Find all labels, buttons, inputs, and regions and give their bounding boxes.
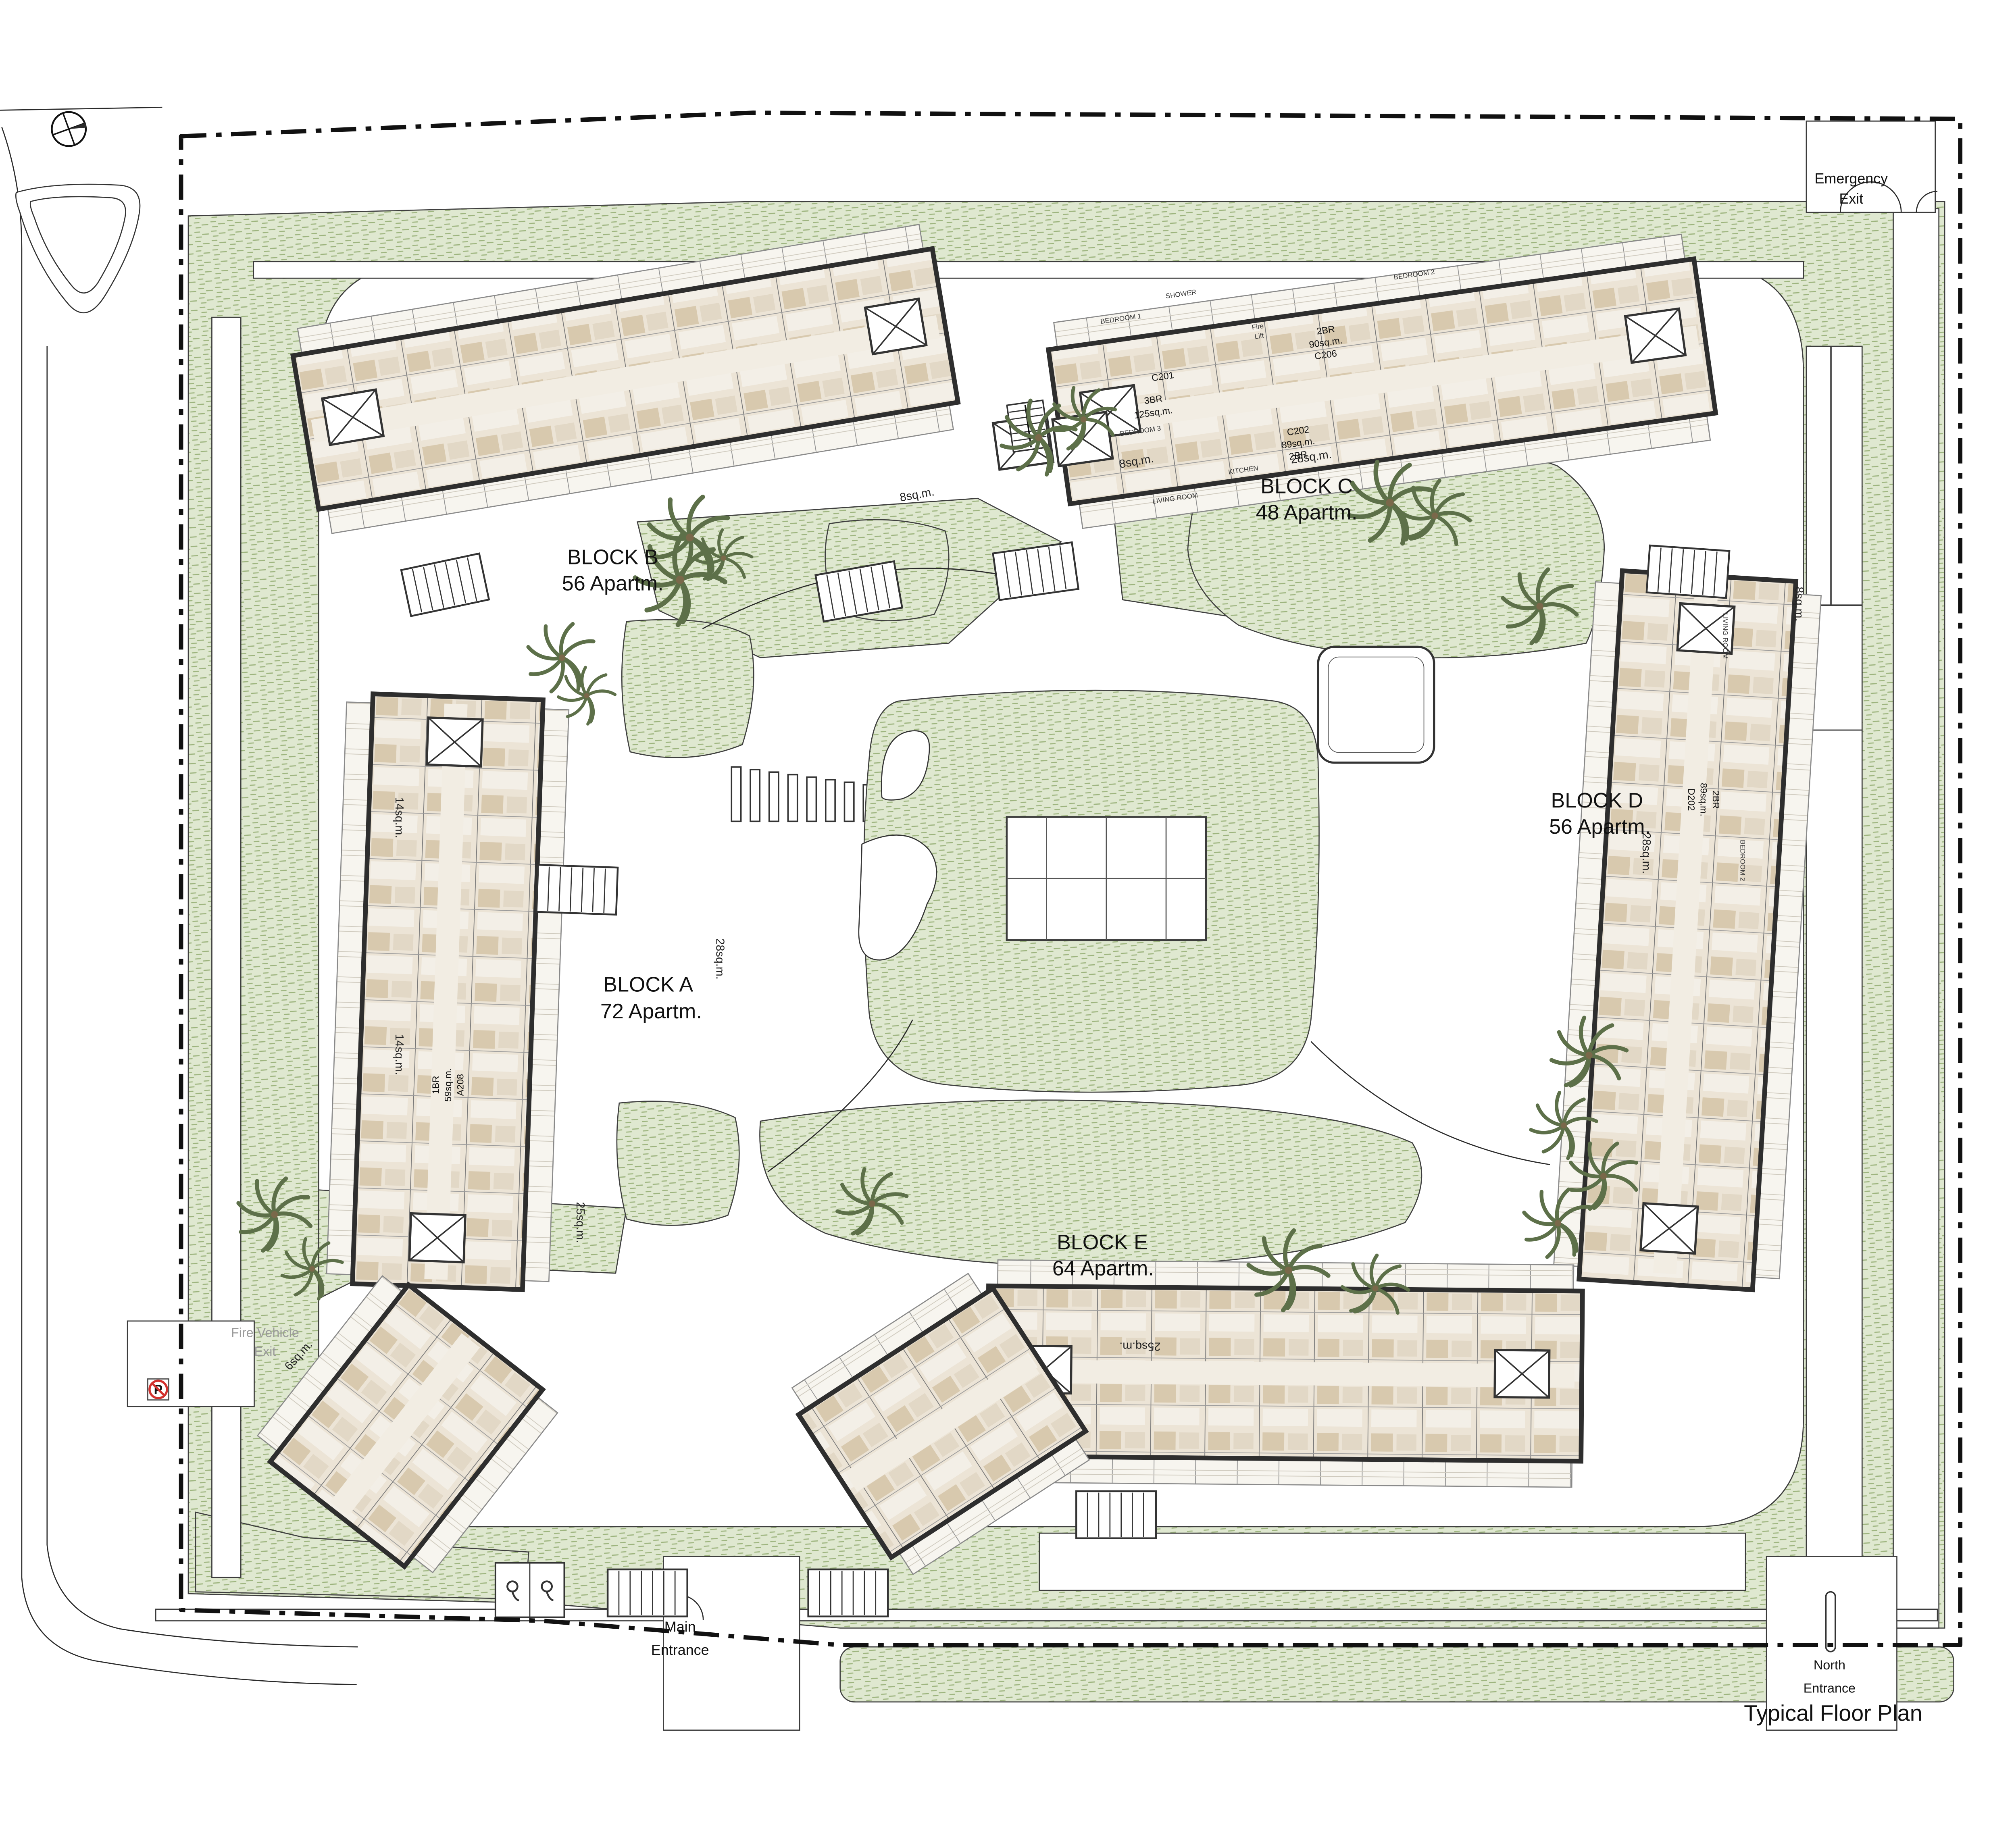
shaft-icon <box>1495 1350 1549 1398</box>
north-entrance-label-1: North <box>1814 1658 1845 1672</box>
accessible-parking-icon <box>496 1563 564 1617</box>
block-b-label: BLOCK B <box>567 546 658 569</box>
room-label-living-d: LIVING ROOM <box>1721 613 1729 659</box>
block-a-apartments: 72 Apartm. <box>600 1000 702 1023</box>
unit-label-d202: D202 <box>1686 789 1697 811</box>
room-label-bedroom2-d: BEDROOM 2 <box>1739 840 1747 881</box>
block-b-apartments: 56 Apartm. <box>562 572 664 595</box>
unit-label-a208-area: 59sq.m. <box>443 1068 453 1102</box>
pergola-icon <box>401 554 489 616</box>
block-c-label: BLOCK C <box>1260 475 1353 498</box>
main-entrance-label-2: Entrance <box>651 1642 709 1658</box>
shaft-icon <box>427 718 483 766</box>
drawing-title: Typical Floor Plan <box>1744 1700 1922 1725</box>
fire-vehicle-exit-label-1: Fire Vehicle <box>231 1325 299 1340</box>
block-e-label: BLOCK E <box>1057 1231 1148 1254</box>
fire-vehicle-exit-label-2: Exit <box>254 1344 276 1359</box>
pergola-icon <box>808 1569 888 1617</box>
block-d-apartments: 56 Apartm. <box>1549 815 1651 839</box>
shaft-icon <box>409 1213 465 1262</box>
unit-label-d202-area: 89sq.m. <box>1699 783 1709 816</box>
survey-marker-icon <box>52 112 86 146</box>
emergency-exit-road <box>1806 121 1935 212</box>
service-road-east <box>1806 730 1862 1624</box>
unit-label-a208-type: 1BR <box>431 1076 441 1094</box>
room-label-fire-lift-1: Fire <box>1252 322 1264 331</box>
walkway-south <box>156 1609 1937 1621</box>
room-label-fire-lift-2: Lift <box>1254 332 1264 341</box>
block-c-apartments: 48 Apartm. <box>1256 501 1358 524</box>
landscape-pocket-west-lower <box>617 1101 739 1226</box>
unit-label-d202-type: 2BR <box>1711 791 1721 809</box>
block-a-label: BLOCK A <box>603 973 693 996</box>
pergola-icon <box>993 542 1079 600</box>
shaft-icon <box>865 299 927 354</box>
north-entrance-label-2: Entrance <box>1804 1681 1856 1695</box>
landscape-pocket-west-upper <box>622 620 754 758</box>
gate-post-icon <box>1826 1592 1835 1652</box>
block-d-building <box>1553 569 1822 1291</box>
pergola-icon <box>608 1569 687 1617</box>
area-label: 25sq.m. <box>574 1202 587 1243</box>
palm-tree-icon <box>528 624 594 691</box>
area-label: 28sq.m. <box>714 939 727 980</box>
block-a-building <box>326 693 569 1290</box>
shaft-icon <box>1641 1203 1698 1254</box>
no-parking-icon: P <box>148 1379 169 1400</box>
area-label: 28sq.m. <box>1640 832 1653 874</box>
crosswalk <box>731 767 873 822</box>
parking-canopy-south <box>1039 1533 1745 1590</box>
unit-label-a208: A208 <box>455 1074 466 1096</box>
block-e-apartments: 64 Apartm. <box>1052 1257 1154 1280</box>
road-east <box>1893 209 1939 1628</box>
tennis-court <box>1007 817 1206 940</box>
emergency-exit-label-1: Emergency <box>1815 170 1888 187</box>
site-plan-canvas: P BLOCK A 72 Apartm. BLOCK B 56 Apartm. … <box>0 0 2016 1823</box>
room-label-shower: SHOWER <box>1165 288 1197 300</box>
shaft-icon <box>1625 308 1686 362</box>
pergola-icon <box>1647 545 1729 598</box>
pavilion <box>1318 647 1434 762</box>
area-label: 8sq.m. <box>1793 587 1806 621</box>
pergola-icon <box>1076 1491 1156 1538</box>
main-entrance-label-1: Main <box>664 1618 696 1635</box>
area-label: 25sq.m. <box>1119 1340 1160 1353</box>
shaft-icon <box>322 389 383 445</box>
area-label: 14sq.m. <box>393 1034 406 1075</box>
block-d-label: BLOCK D <box>1551 789 1643 812</box>
pergola-icon <box>537 865 618 915</box>
area-label: 14sq.m. <box>393 797 406 838</box>
emergency-exit-label-2: Exit <box>1839 190 1863 207</box>
